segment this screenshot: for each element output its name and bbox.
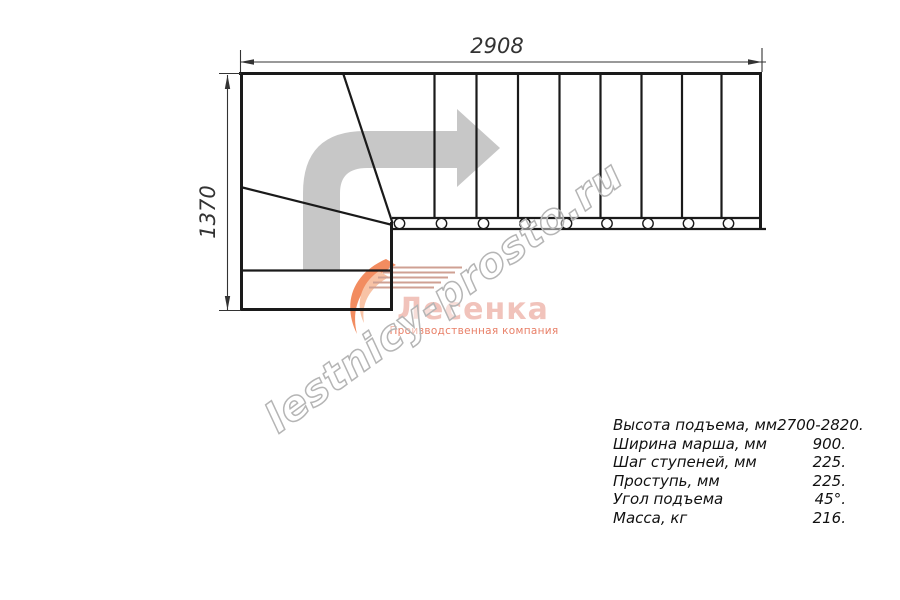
spec-label: Шаг ступеней, мм bbox=[613, 453, 757, 472]
spec-value: 900. bbox=[813, 435, 846, 454]
height-dimension-line bbox=[219, 74, 241, 311]
width-dimension-label: 2908 bbox=[470, 34, 523, 58]
spec-value: 216. bbox=[813, 509, 846, 528]
spec-row-height: Высота подъема, мм 2700-2820. bbox=[613, 416, 846, 435]
spec-label: Проступь, мм bbox=[613, 472, 720, 491]
baluster-marker bbox=[394, 218, 404, 228]
spec-row-flight-width: Ширина марша, мм 900. bbox=[613, 435, 846, 454]
spec-value: 45°. bbox=[815, 490, 846, 509]
spec-label: Ширина марша, мм bbox=[613, 435, 767, 454]
spec-table: Высота подъема, мм 2700-2820. Ширина мар… bbox=[613, 416, 846, 528]
spec-label: Высота подъема, мм bbox=[613, 416, 777, 435]
spec-row-mass: Масса, кг 216. bbox=[613, 509, 846, 528]
baluster-marker bbox=[643, 218, 653, 228]
direction-arrow-icon bbox=[303, 109, 500, 271]
spec-label: Масса, кг bbox=[613, 509, 687, 528]
spec-label: Угол подъема bbox=[613, 490, 723, 509]
baluster-marker bbox=[520, 218, 530, 228]
height-dimension-label: 1370 bbox=[196, 185, 220, 238]
logo-subtitle: Производственная компания bbox=[386, 325, 562, 337]
spec-value: 225. bbox=[813, 453, 846, 472]
baluster-marker bbox=[561, 218, 571, 228]
baluster-marker bbox=[723, 218, 733, 228]
spec-row-angle: Угол подъема 45°. bbox=[613, 490, 846, 509]
spec-row-tread: Проступь, мм 225. bbox=[613, 472, 846, 491]
stringer-band bbox=[392, 218, 766, 229]
baluster-marker bbox=[478, 218, 488, 228]
spec-value: 225. bbox=[813, 472, 846, 491]
baluster-marker bbox=[602, 218, 612, 228]
spec-row-step-pitch: Шаг ступеней, мм 225. bbox=[613, 453, 846, 472]
baluster-marker bbox=[436, 218, 446, 228]
staircase-drawing-page: 2908 1370 Лесенка Производственная компа… bbox=[0, 0, 900, 600]
spec-value: 2700-2820. bbox=[777, 416, 864, 435]
logo-company-name: Лесенка bbox=[397, 292, 549, 327]
baluster-marker bbox=[683, 218, 693, 228]
